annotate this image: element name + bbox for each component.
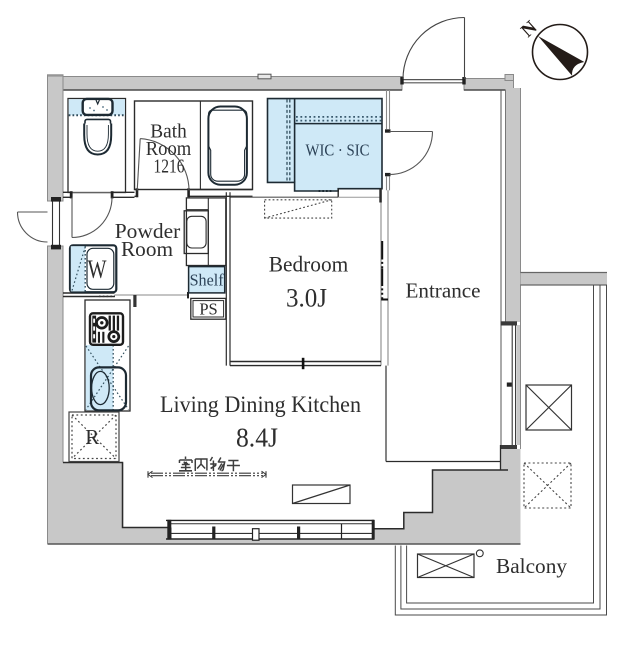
- svg-text:Living Dining Kitchen: Living Dining Kitchen: [160, 392, 361, 417]
- svg-text:W: W: [88, 255, 107, 284]
- svg-text:WIC · SIC: WIC · SIC: [306, 141, 370, 160]
- svg-text:Entrance: Entrance: [406, 279, 481, 303]
- svg-text:R: R: [85, 425, 99, 449]
- svg-text:PS: PS: [199, 300, 217, 319]
- svg-text:8.4J: 8.4J: [236, 423, 278, 453]
- svg-text:Room: Room: [121, 237, 173, 261]
- svg-text:3.0J: 3.0J: [286, 284, 327, 313]
- svg-text:Balcony: Balcony: [496, 554, 567, 578]
- svg-text:Bedroom: Bedroom: [269, 252, 349, 277]
- svg-text:Shelf: Shelf: [190, 271, 224, 290]
- svg-text:1216: 1216: [154, 157, 185, 178]
